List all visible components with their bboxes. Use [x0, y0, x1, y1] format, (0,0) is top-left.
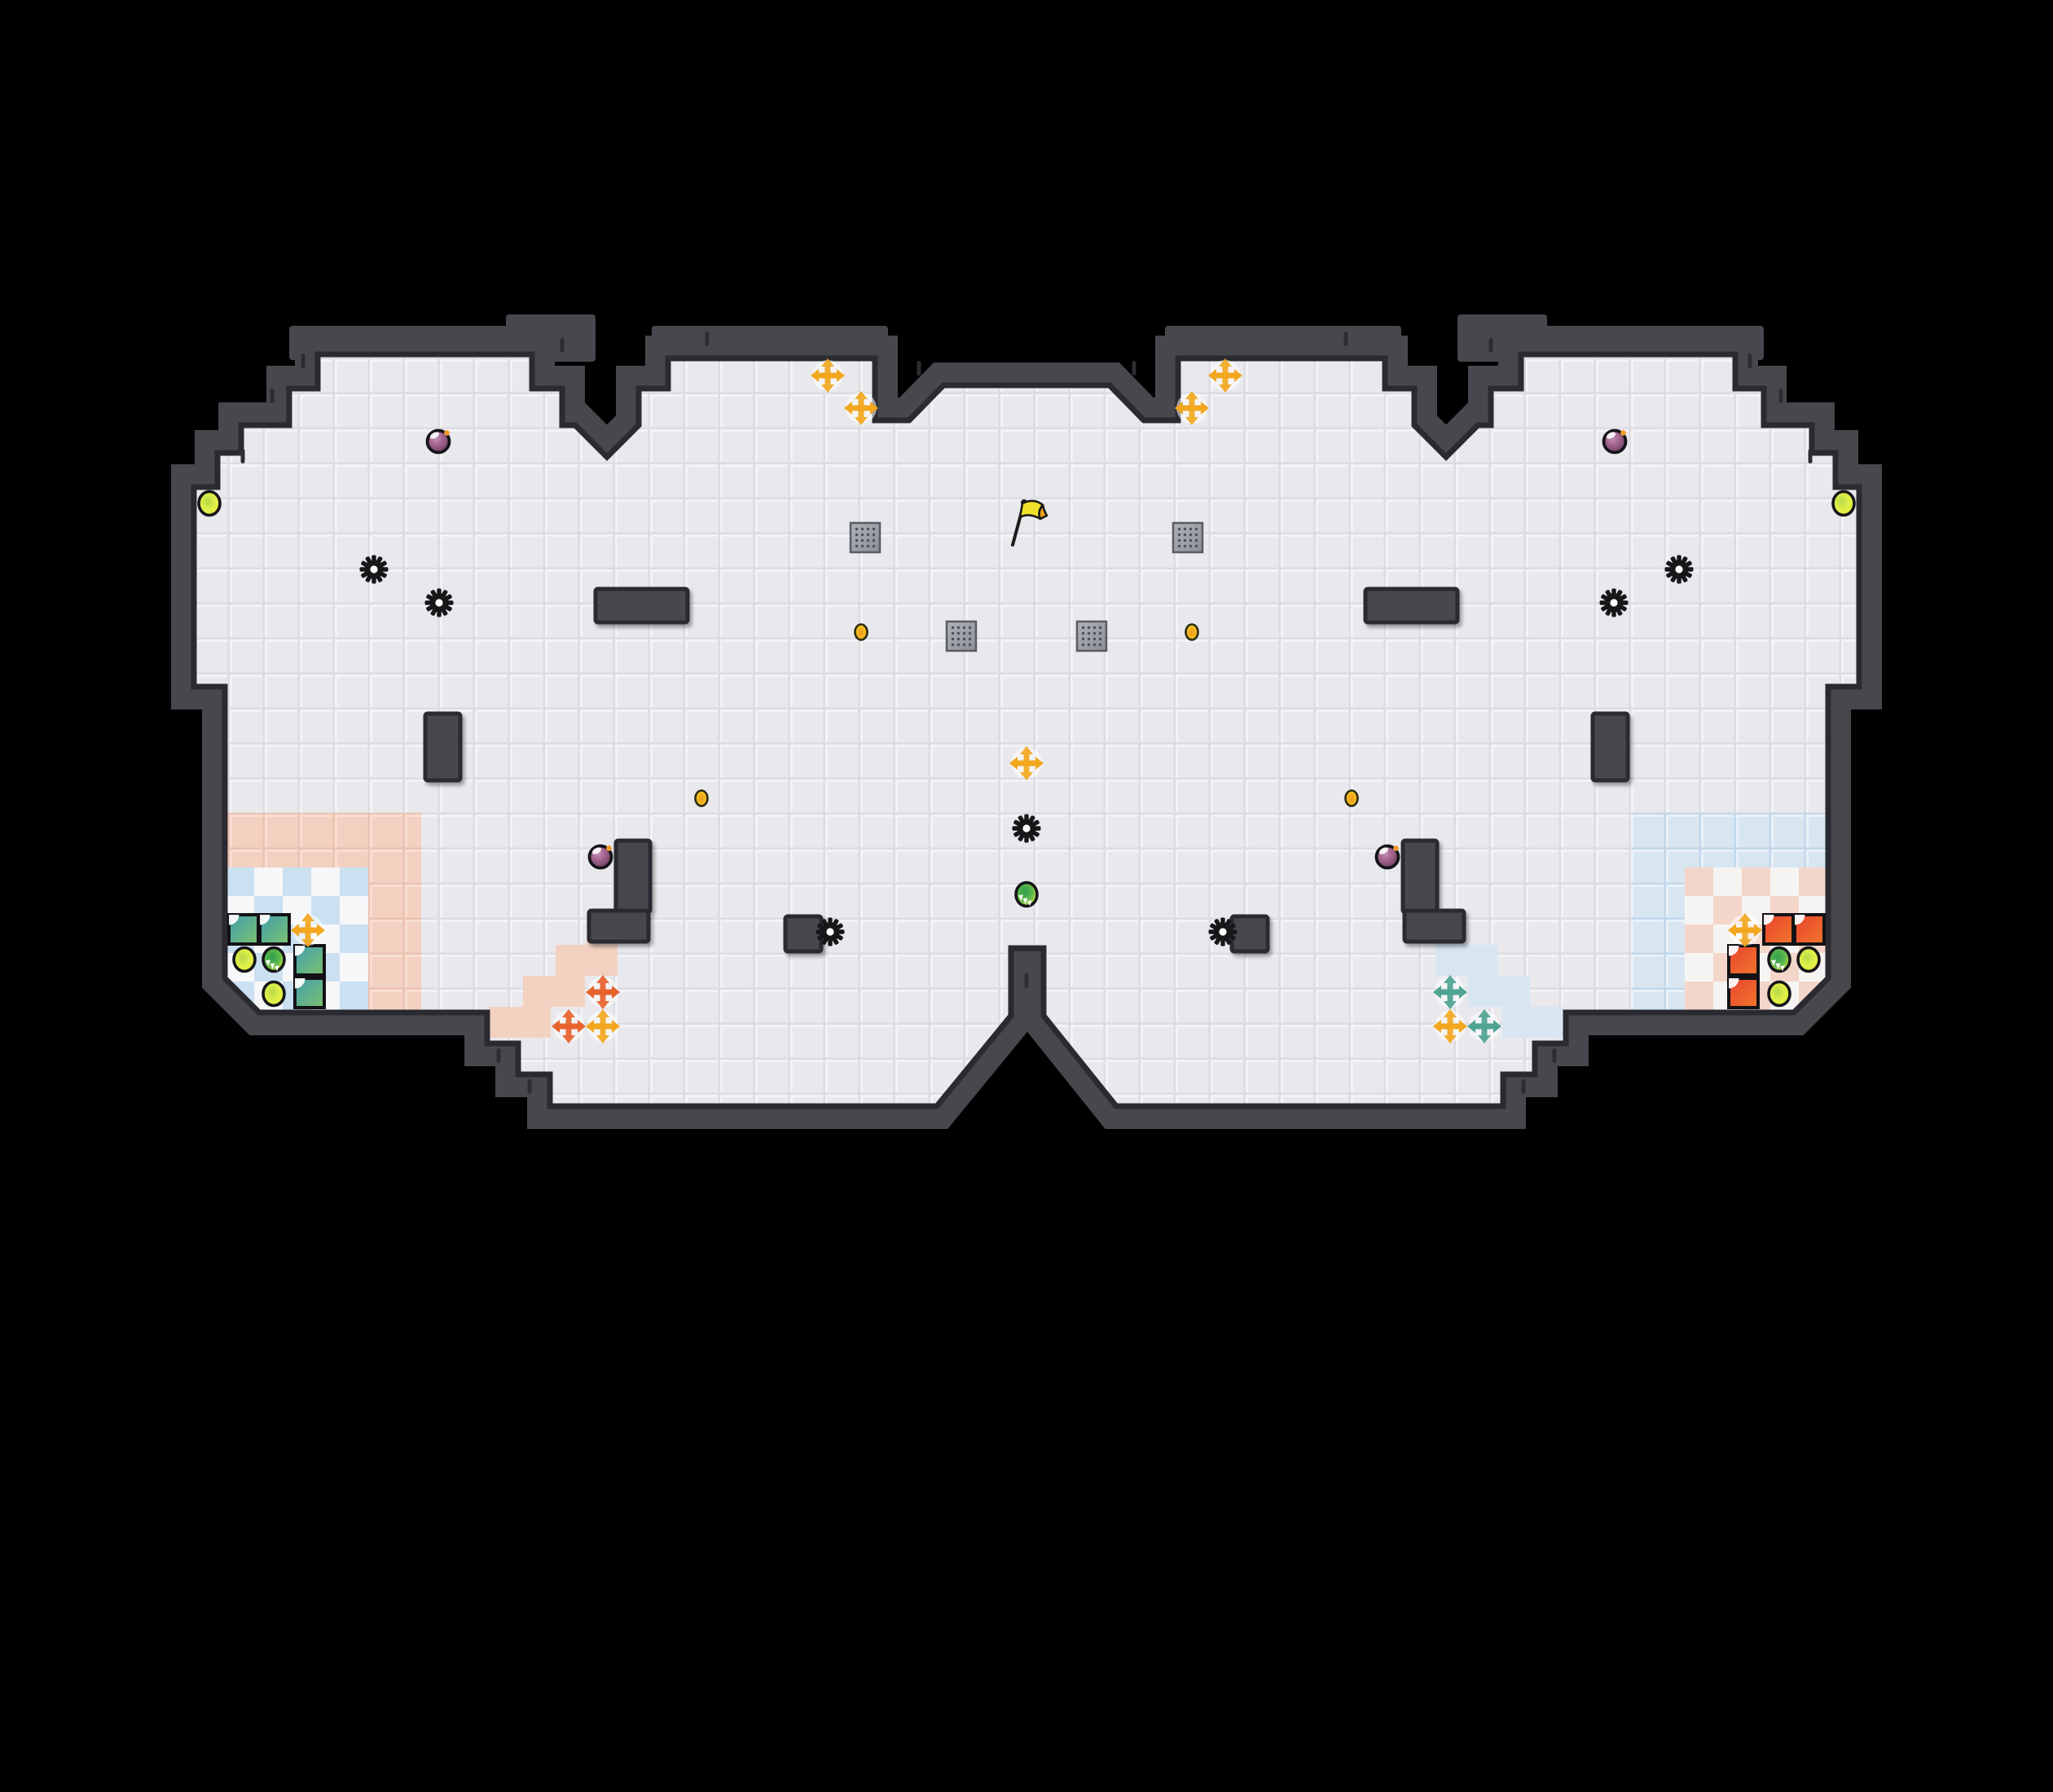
bomb[interactable]: [428, 430, 450, 452]
slime-yellow[interactable]: [1769, 982, 1790, 1006]
blue-stair-tile: [1499, 976, 1530, 1007]
spawn-pad-red[interactable]: [1729, 946, 1758, 975]
slime-green[interactable]: [1769, 948, 1790, 972]
salmon-stair-tile: [554, 976, 585, 1007]
wall-tick: [1522, 1079, 1526, 1094]
spawn-pad-red[interactable]: [1729, 978, 1758, 1008]
checker-tile-pink: [1685, 925, 1713, 953]
wall-block: [596, 589, 688, 622]
wall-block: [1593, 714, 1628, 780]
wall-tick: [1748, 354, 1752, 368]
coin[interactable]: [696, 791, 708, 806]
vent-grate: [1077, 621, 1106, 651]
checker-tile-pink: [1685, 867, 1713, 896]
salmon-stair-tile: [556, 945, 587, 976]
wall-block: [785, 916, 821, 951]
blue-stair-tile: [1533, 1007, 1564, 1038]
checker-tile-blue: [340, 925, 368, 953]
wall-tick: [1344, 332, 1348, 346]
wall-block: [589, 911, 648, 942]
slime-yellow[interactable]: [234, 948, 255, 972]
wall-tick: [561, 338, 565, 353]
wall-tick: [917, 361, 921, 376]
spawn-pad-red[interactable]: [1795, 915, 1824, 944]
checker-tile-blue: [340, 982, 368, 1010]
checker-tile-pink: [1685, 896, 1713, 925]
checker-tile-pink: [1713, 867, 1742, 896]
wall-block: [1232, 916, 1268, 951]
salmon-stair-tile: [587, 945, 618, 976]
wall-tick: [301, 354, 306, 368]
vent-grate: [1173, 523, 1202, 552]
spawn-pad-teal[interactable]: [229, 915, 258, 944]
wall-tick: [1132, 361, 1136, 376]
checker-tile-blue: [226, 867, 254, 896]
wall-tick: [270, 389, 275, 403]
coin[interactable]: [1186, 625, 1198, 640]
wall-tick: [1489, 338, 1493, 353]
wall-tick: [1809, 449, 1813, 463]
wall-tick: [1025, 973, 1029, 988]
slime-green[interactable]: [1016, 883, 1037, 907]
blue-zone: [1632, 867, 1685, 1012]
blue-stair-tile: [1466, 945, 1497, 976]
coin[interactable]: [1346, 791, 1358, 806]
salmon-zone: [226, 813, 421, 870]
wall-block: [1403, 841, 1437, 912]
salmon-zone: [368, 867, 421, 1012]
vent-grate: [947, 621, 976, 651]
bomb[interactable]: [1604, 430, 1626, 452]
wall-block: [425, 714, 460, 780]
slime-yellow[interactable]: [199, 492, 220, 516]
wall-tick: [706, 332, 710, 346]
wall-tick: [497, 1048, 501, 1063]
salmon-stair-tile: [523, 976, 554, 1007]
checker-tile-pink: [1770, 867, 1799, 896]
slime-green[interactable]: [263, 948, 284, 972]
bomb[interactable]: [590, 845, 612, 867]
checker-tile-pink: [1685, 953, 1713, 982]
wall-tick: [1779, 389, 1783, 403]
checker-tile-blue: [340, 867, 368, 896]
wall-tick: [1553, 1048, 1557, 1063]
wall-block: [1405, 911, 1464, 942]
checker-tile-blue: [254, 867, 283, 896]
salmon-stair-tile: [520, 1007, 551, 1038]
spawn-pad-red[interactable]: [1764, 915, 1793, 944]
wall-block: [1365, 589, 1457, 622]
slime-yellow[interactable]: [1798, 948, 1819, 972]
wall-tick: [528, 1079, 532, 1094]
slime-yellow[interactable]: [1833, 492, 1854, 516]
salmon-stair-tile: [489, 1007, 520, 1038]
vent-grate: [851, 523, 880, 552]
game-viewport: [0, 0, 2053, 1792]
spawn-pad-teal[interactable]: [295, 978, 324, 1008]
blue-stair-tile: [1502, 1007, 1533, 1038]
checker-tile-pink: [1742, 867, 1770, 896]
checker-tile-blue: [283, 867, 311, 896]
spawn-pad-teal[interactable]: [260, 915, 289, 944]
spawn-pad-teal[interactable]: [295, 946, 324, 975]
blue-zone: [1632, 813, 1827, 870]
wall-block: [616, 841, 650, 912]
slime-yellow[interactable]: [263, 982, 284, 1006]
blue-stair-tile: [1435, 945, 1466, 976]
checker-tile-blue: [311, 867, 340, 896]
bomb[interactable]: [1377, 845, 1399, 867]
checker-tile-pink: [1685, 982, 1713, 1010]
coin[interactable]: [855, 625, 868, 640]
checker-tile-blue: [340, 953, 368, 982]
blue-stair-tile: [1468, 976, 1499, 1007]
arena-map: [0, 0, 2053, 1792]
checker-tile-pink: [1799, 867, 1827, 896]
wall-tick: [241, 449, 245, 463]
checker-tile-blue: [340, 896, 368, 925]
